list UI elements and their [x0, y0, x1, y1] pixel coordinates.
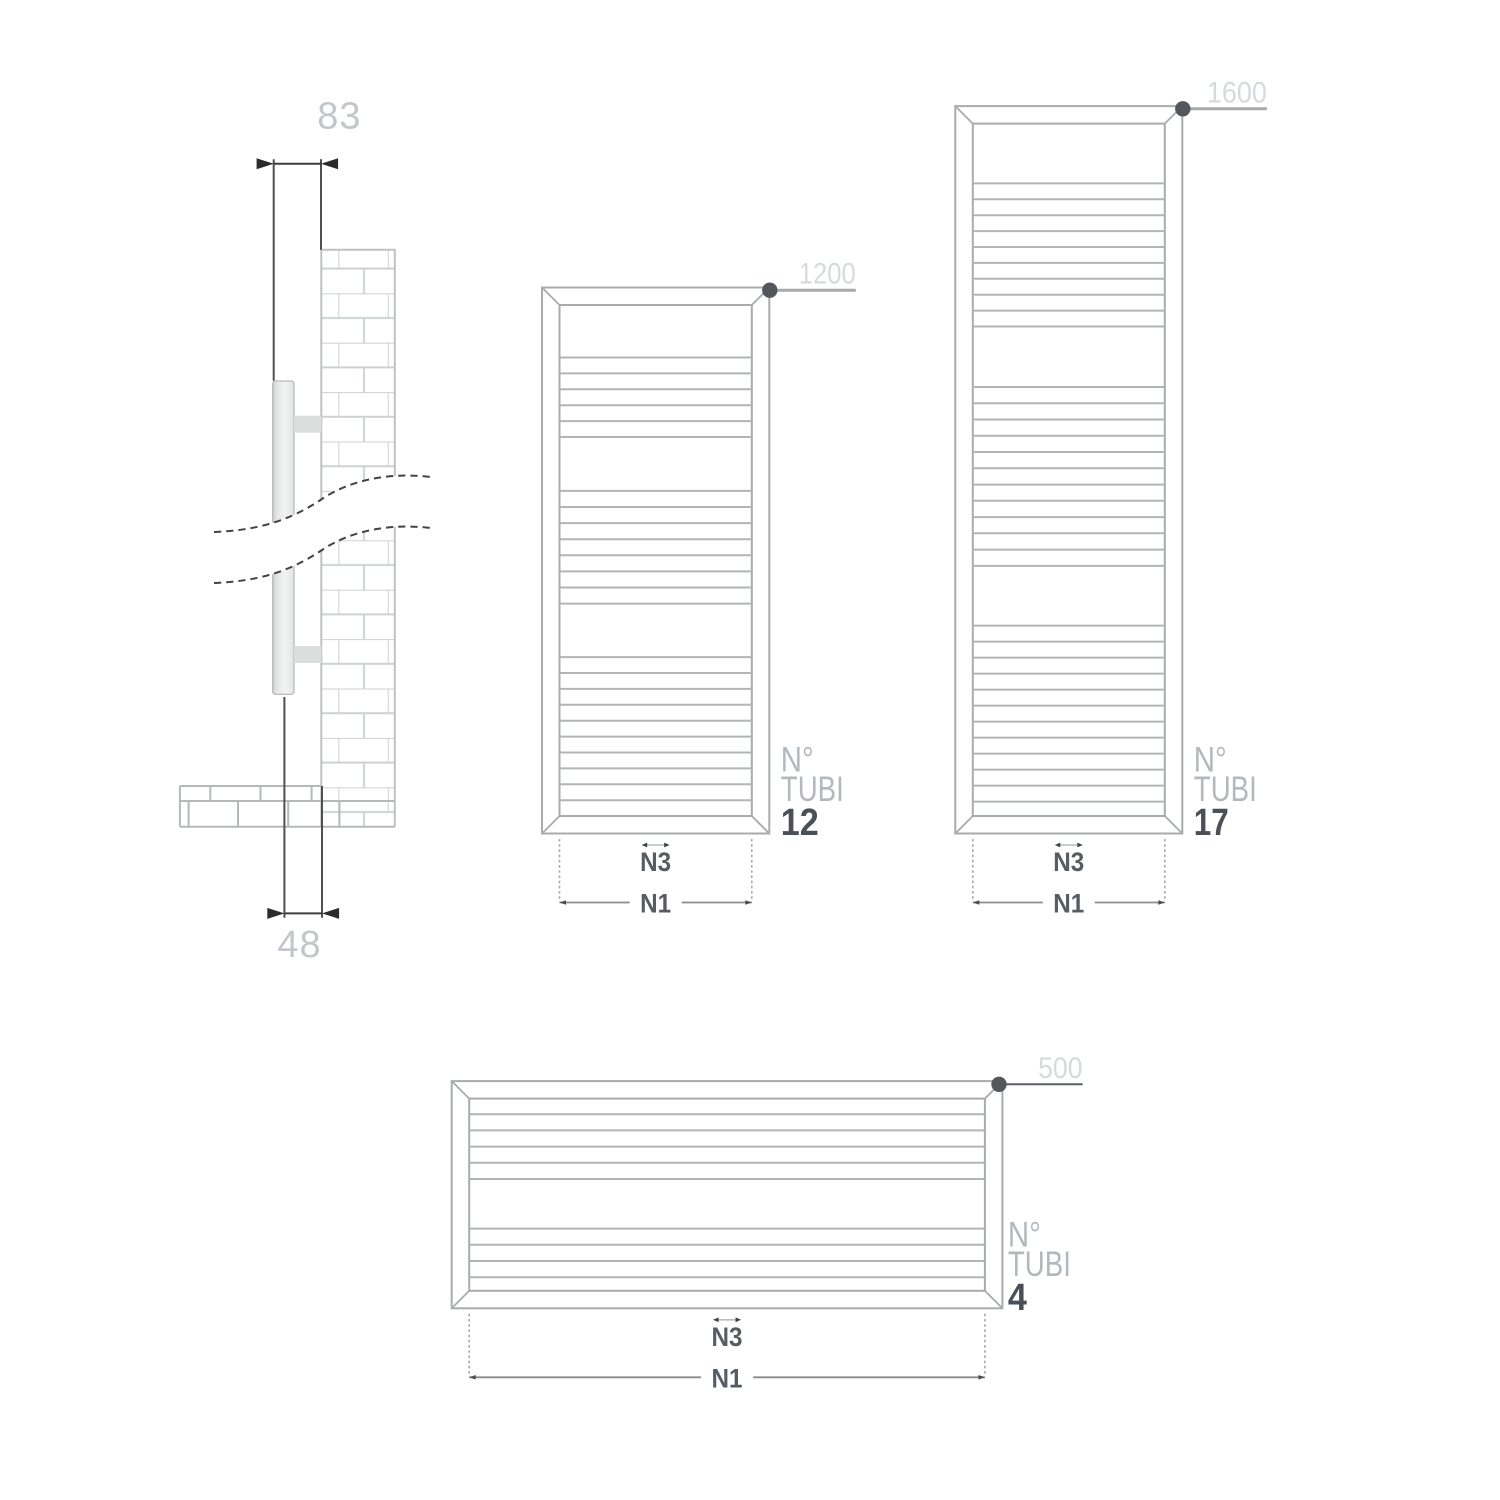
svg-text:1600: 1600: [1207, 76, 1267, 109]
svg-text:N3: N3: [640, 847, 671, 877]
svg-text:500: 500: [1038, 1052, 1083, 1085]
svg-text:N1: N1: [640, 889, 671, 919]
svg-text:N1: N1: [712, 1363, 743, 1393]
svg-text:1200: 1200: [799, 258, 856, 291]
svg-text:12: 12: [781, 802, 819, 844]
svg-text:48: 48: [277, 924, 321, 966]
svg-text:N3: N3: [1053, 847, 1084, 877]
svg-text:N3: N3: [712, 1322, 743, 1352]
svg-text:17: 17: [1194, 802, 1229, 844]
svg-text:4: 4: [1008, 1277, 1027, 1319]
svg-text:83: 83: [317, 96, 361, 138]
svg-text:N1: N1: [1053, 889, 1084, 919]
